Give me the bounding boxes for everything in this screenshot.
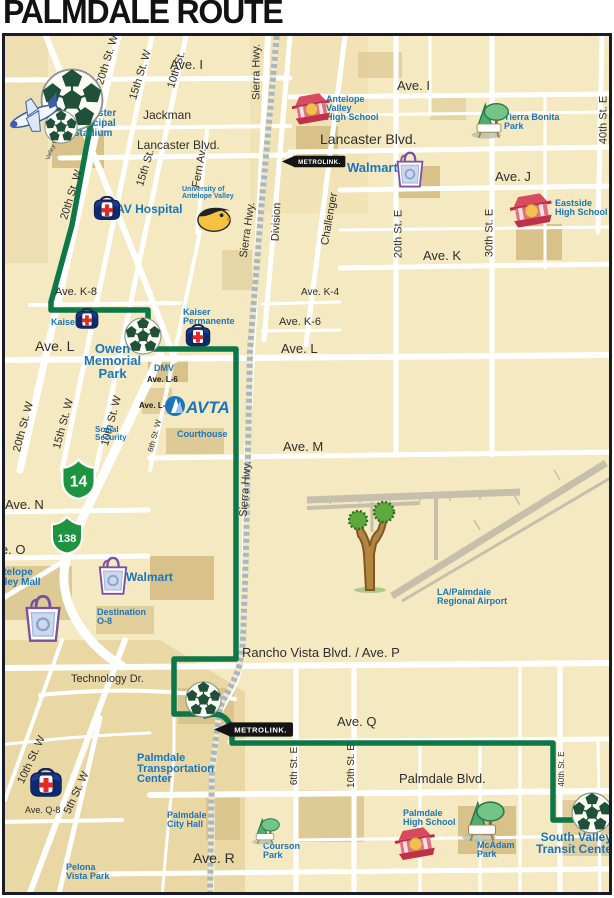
landmark-palmdale-transportation-center: Palmdale Transportation Center [137, 753, 214, 785]
street-label-lancaster-blvd: Lancaster Blvd. [320, 132, 417, 146]
avta-icon: AVTA [164, 394, 230, 418]
street-label-ave-i: Ave. I [397, 79, 430, 92]
soccer-icon [185, 681, 222, 718]
hospital-icon [92, 196, 122, 221]
page-title: PALMDALE ROUTE [3, 0, 282, 31]
landmark-university-of-antelope-valley: University of Antelope Valley [182, 187, 234, 201]
bag-icon [22, 594, 64, 643]
bag-icon [96, 556, 130, 596]
svg-text:14: 14 [70, 473, 88, 490]
street-label-ave-k-8: Ave. K-8 [55, 287, 97, 298]
landmark-courthouse: Courthouse [177, 430, 228, 439]
street-label-ave-q-8: Ave. Q-8 [25, 806, 60, 815]
landmark-eastside-high-school: Eastside High School [555, 199, 608, 217]
landmark-palmdale-city-hall: Palmdale City Hall [167, 811, 207, 829]
hospital-icon [28, 768, 64, 798]
street-label-ave-n: Ave. N [5, 498, 44, 511]
street-label-ave-j: Ave. J [495, 170, 531, 183]
landmark-dmv: DMV [154, 364, 174, 373]
street-label-ave-l: Ave. L [35, 339, 74, 353]
map-world: Ave. IAve. IJackmanLancaster Blvd.Lancas… [2, 33, 612, 895]
landmark-antelope-valley-high-school: Antelope Valley High School [326, 95, 379, 121]
plane-icon [6, 90, 64, 142]
street-label-ave-l: Ave. L [281, 342, 318, 355]
highway-shield-14: 14 [60, 458, 97, 500]
landmark-social-security: Social Security [95, 426, 127, 442]
street-label-jackman: Jackman [143, 109, 191, 121]
svg-text:AVTA: AVTA [185, 398, 230, 417]
street-label-30th-st-e: 30th St. E [485, 209, 496, 257]
street-label-10th-st-e: 10th St. E [347, 744, 357, 788]
street-label-ave-k-6: Ave. K-6 [279, 317, 321, 328]
street-label-palmdale-blvd: Palmdale Blvd. [399, 772, 486, 785]
street-label-ave-m: Ave. M [283, 440, 323, 453]
street-label-20th-st-e: 20th St. E [394, 210, 405, 258]
street-label-ave-l-6: Ave. L-6 [147, 376, 178, 384]
palmdale-route-map-page: PALMDALE ROUTE [0, 0, 614, 898]
street-label-ave-r: Ave. R [193, 851, 235, 865]
street-label-40th-st-e: 40th St. E [558, 751, 566, 786]
landmark-tierra-bonita-park: Tierra Bonita Park [504, 113, 559, 131]
landmark-av-hospital: AV Hospital [116, 204, 182, 216]
landmark-pelona-vista-park: Pelona Vista Park [66, 863, 109, 881]
street-label-6th-st-e: 6th St. E [290, 747, 300, 785]
street-label-ave-k: Ave. K [423, 249, 461, 262]
highway-shield-138: 138 [47, 516, 87, 554]
street-label-division: Division [270, 202, 283, 241]
svg-text:METROLINK.: METROLINK. [298, 159, 341, 166]
park-icon [456, 798, 508, 844]
landmark-walmart: Walmart [347, 162, 398, 175]
landmark-destination-o-8: Destination O-8 [97, 608, 146, 626]
street-label-ave-k-4: Ave. K-4 [301, 288, 339, 298]
street-label-rancho-vista-blvd-ave-p: Rancho Vista Blvd. / Ave. P [242, 646, 400, 659]
landmark-antelope-valley-mall: Antelope Valley Mall [2, 568, 41, 588]
metrolink-sign: METROLINK. [281, 153, 347, 170]
street-label-40th-st-e: 40th St. E [599, 96, 610, 144]
landmark-la-palmdale-regional-airport: LA/Palmdale Regional Airport [437, 588, 507, 606]
svg-text:138: 138 [58, 533, 77, 545]
hospital-icon [184, 324, 212, 347]
landmark-walmart: Walmart [126, 572, 173, 584]
street-label-ave-o: Ave. O [2, 543, 26, 556]
school-icon [509, 192, 555, 234]
joshua-icon [348, 496, 396, 594]
soccer-icon [124, 317, 162, 355]
svg-text:METROLINK.: METROLINK. [234, 726, 287, 735]
landmark-palmdale-high-school: Palmdale High School [403, 809, 456, 827]
metrolink-sign: METROLINK. [213, 719, 295, 740]
bag-icon [394, 151, 426, 188]
school-icon [394, 826, 438, 866]
street-label-technology-dr: Technology Dr. [71, 674, 144, 685]
eagle-icon [196, 201, 232, 233]
park-icon [466, 100, 512, 140]
park-icon [248, 816, 282, 846]
landmark-kaiser-permanente: Kaiser Permanente [183, 308, 235, 326]
school-icon [291, 92, 333, 130]
hospital-icon [74, 308, 100, 330]
soccer-icon [571, 792, 612, 834]
street-label-ave-q: Ave. Q [337, 715, 377, 728]
map: Ave. IAve. IJackmanLancaster Blvd.Lancas… [2, 33, 612, 895]
landmark-south-valley-transit-center: South Valley Transit Center [536, 832, 612, 855]
street-label-sierra-hwy: Sierra Hwy. [252, 44, 263, 100]
